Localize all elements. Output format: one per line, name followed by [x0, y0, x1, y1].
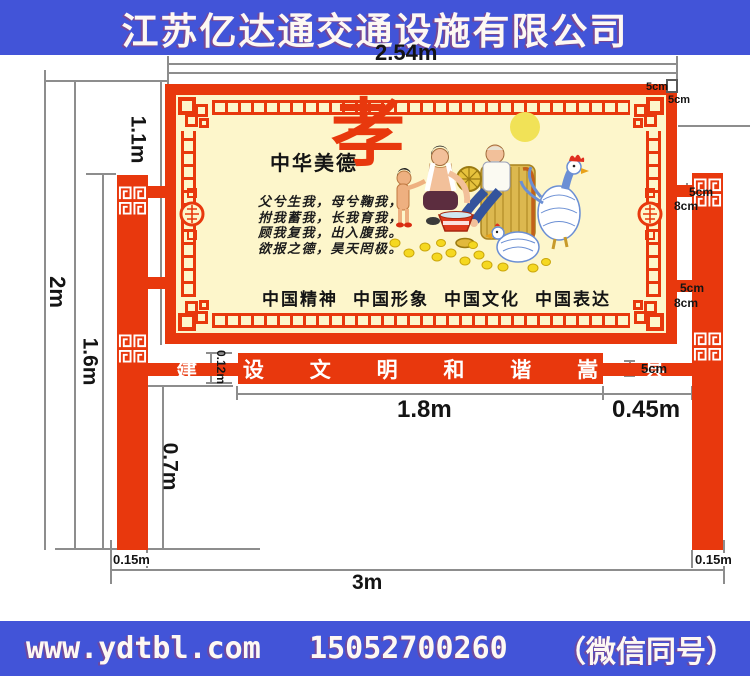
- dimension-line: [237, 393, 603, 395]
- lattice-corner: [178, 97, 216, 135]
- dimension-line: [603, 393, 693, 395]
- longevity-medallion-icon: [637, 188, 663, 240]
- dimension-line: [74, 80, 76, 550]
- slogan-row: 中国精神 中国形象 中国文化 中国表达: [262, 285, 611, 310]
- slogan-item: 中国表达: [535, 285, 611, 310]
- dim-connector-bottom-h: 8cm: [674, 297, 698, 309]
- dim-frame-bar-b: 5cm: [668, 95, 690, 106]
- slogan-item: 中国形象: [353, 285, 429, 310]
- dim-banner-height: 0.12m: [215, 344, 227, 390]
- poem-line: 拊我蓄我，长我育我，: [258, 211, 403, 227]
- dim-connector-bottom-w: 5cm: [680, 282, 704, 294]
- dimension-tick: [691, 550, 693, 568]
- slogan-item: 中国精神: [262, 285, 338, 310]
- poem-text: 父兮生我，母兮鞠我， 拊我蓄我，长我育我， 顾我复我，出入腹我。 欲报之德，昊天…: [258, 195, 403, 257]
- poster: 江苏亿达通交通设施有限公司: [0, 0, 750, 676]
- dimension-tick: [236, 386, 238, 400]
- footer-band: www.ydtbl.com 15052700260 （微信同号）: [0, 621, 750, 676]
- dimension-line: [678, 125, 750, 127]
- dimension-line: [168, 72, 678, 74]
- dimension-tick: [55, 548, 260, 550]
- dimension-line: [111, 569, 725, 571]
- wechat-note: （微信同号）: [556, 627, 736, 671]
- longevity-medallion-icon: [179, 188, 205, 240]
- dim-post-height: 1.6m: [80, 335, 101, 389]
- dim-side-gap: 0.45m: [612, 398, 680, 422]
- dimension-tick: [86, 173, 116, 175]
- poem-line: 父兮生我，母兮鞠我，: [258, 195, 403, 211]
- lattice-corner: [626, 293, 664, 331]
- dimension-line: [45, 80, 168, 82]
- dim-clearance: 0.7m: [160, 440, 181, 494]
- greek-key-ornament-icon: [693, 331, 722, 363]
- dimension-tick: [676, 56, 678, 79]
- dim-overall-width: 3m: [352, 572, 382, 593]
- connector-bar: [148, 277, 165, 289]
- dim-board-width: 2.54m: [375, 42, 437, 64]
- lattice-corner: [178, 293, 216, 331]
- slogan-item: 中国文化: [444, 285, 520, 310]
- filial-piety-illustration: [383, 105, 630, 287]
- dim-connector-top-w: 5cm: [689, 186, 713, 198]
- right-post: [692, 173, 723, 550]
- billboard: 中华美德 孝 父兮生我，母兮鞠我， 拊我蓄我，长我育我， 顾我复我，出入腹我。 …: [165, 84, 677, 344]
- greek-key-ornament-icon: [118, 185, 147, 217]
- dim-total-height: 2m: [46, 272, 68, 312]
- street-banner: 建 设 文 明 和 谐 嵩 县: [238, 353, 603, 384]
- poem-line: 顾我复我，出入腹我。: [258, 226, 403, 242]
- dim-connector-top-h: 8cm: [674, 200, 698, 212]
- dim-base-left: 0.15m: [112, 553, 151, 566]
- dim-board-height: 1.1m: [128, 115, 149, 165]
- dim-base-right: 0.15m: [694, 553, 733, 566]
- dimension-line: [102, 174, 104, 550]
- lattice-border: [212, 313, 630, 328]
- dim-banner-width: 1.8m: [397, 398, 452, 422]
- website-text: www.ydtbl.com: [26, 631, 261, 666]
- left-post: [117, 175, 148, 550]
- connector-bar: [148, 186, 165, 198]
- phone-text: 15052700260: [309, 631, 508, 666]
- lattice-corner: [626, 97, 664, 135]
- dim-frame-bar-a: 5cm: [646, 82, 668, 93]
- greek-key-ornament-icon: [118, 333, 147, 365]
- dim-crossbar: 5cm: [641, 362, 667, 375]
- dimension-line: [160, 80, 162, 345]
- poem-line: 欲报之德，昊天罔极。: [258, 242, 403, 258]
